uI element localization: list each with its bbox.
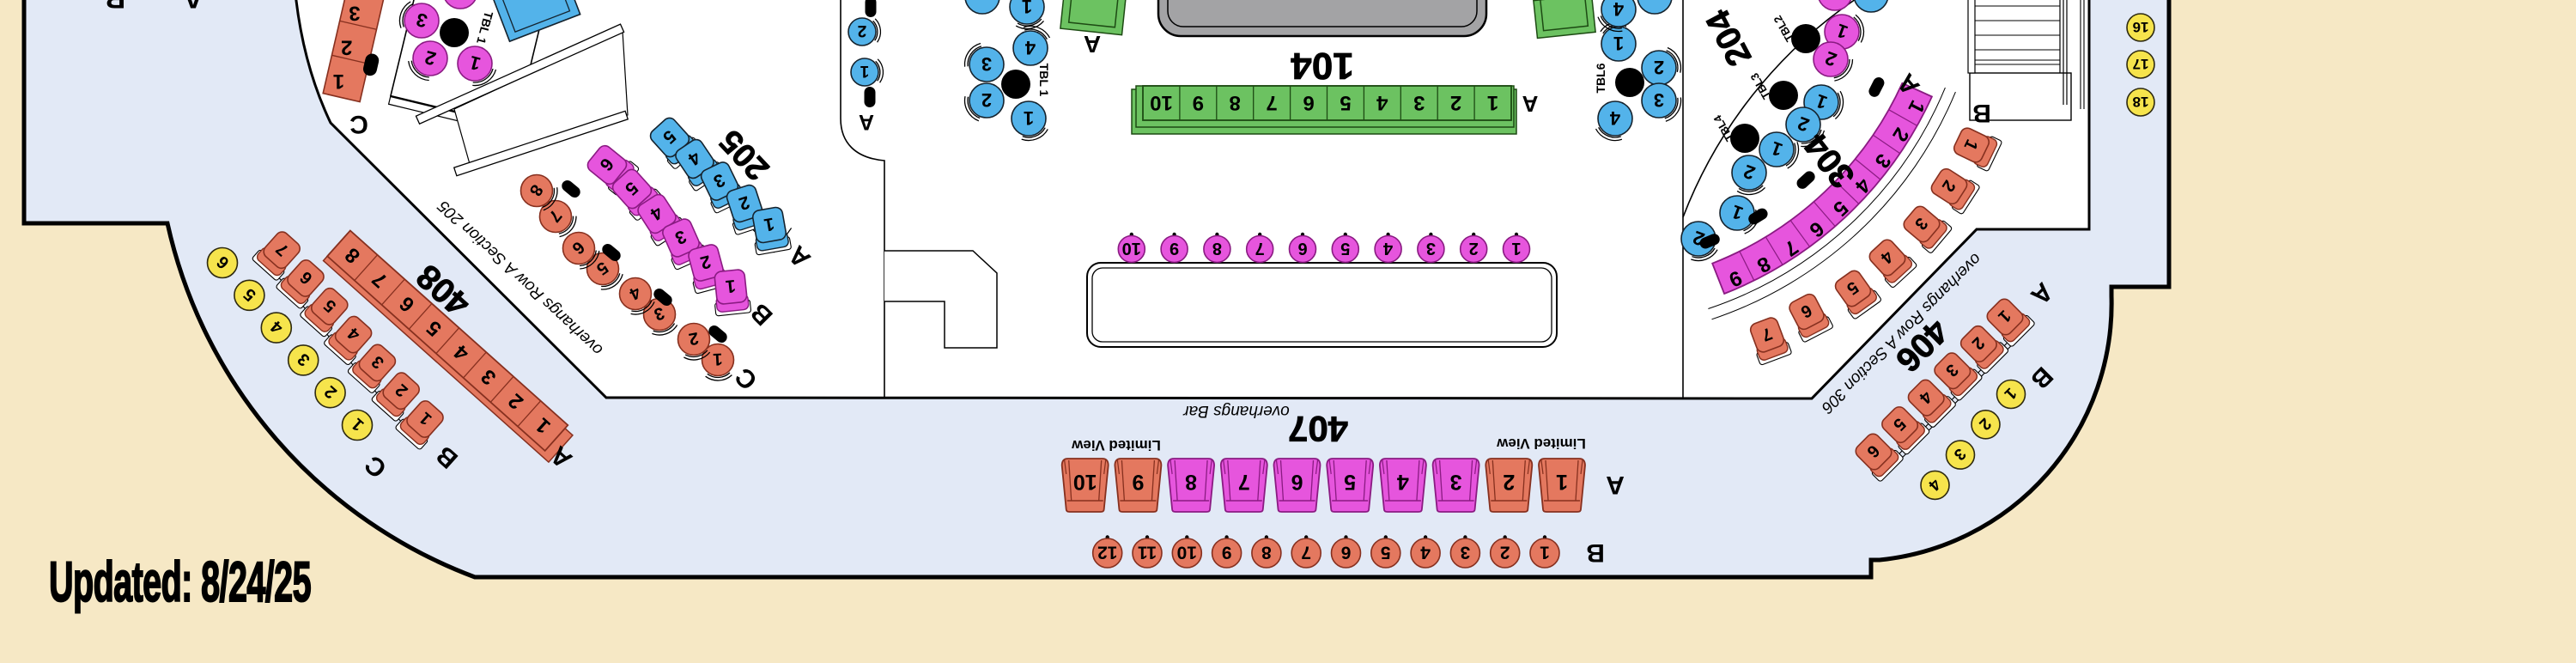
svg-text:4: 4 bbox=[1024, 37, 1036, 58]
svg-text:A: A bbox=[1606, 471, 1625, 499]
svg-text:TBL6: TBL6 bbox=[1594, 63, 1607, 93]
svg-text:5: 5 bbox=[1344, 470, 1356, 494]
svg-text:3: 3 bbox=[1461, 542, 1471, 562]
svg-text:2: 2 bbox=[1503, 470, 1515, 494]
svg-text:10: 10 bbox=[1150, 91, 1173, 114]
svg-text:B: B bbox=[1586, 538, 1605, 567]
svg-text:A: A bbox=[183, 0, 204, 14]
svg-text:1: 1 bbox=[860, 62, 869, 80]
svg-text:A: A bbox=[859, 110, 874, 134]
svg-text:1: 1 bbox=[333, 70, 344, 93]
svg-text:4: 4 bbox=[1397, 470, 1409, 494]
svg-text:3: 3 bbox=[1654, 89, 1664, 111]
svg-text:overhangs Bar: overhangs Bar bbox=[1183, 402, 1290, 420]
svg-text:7: 7 bbox=[1238, 470, 1250, 494]
svg-text:6: 6 bbox=[1291, 470, 1303, 494]
svg-text:2: 2 bbox=[981, 89, 992, 111]
svg-text:A: A bbox=[1084, 31, 1101, 58]
svg-text:1: 1 bbox=[1024, 107, 1034, 129]
svg-text:2: 2 bbox=[341, 35, 352, 58]
svg-text:7: 7 bbox=[1266, 91, 1277, 114]
svg-text:6: 6 bbox=[1303, 91, 1314, 114]
svg-text:8: 8 bbox=[1261, 542, 1272, 562]
svg-text:6: 6 bbox=[1297, 239, 1307, 258]
svg-text:6: 6 bbox=[1341, 542, 1352, 562]
svg-text:2: 2 bbox=[1450, 91, 1461, 114]
svg-text:A: A bbox=[1522, 91, 1538, 117]
svg-text:1: 1 bbox=[1022, 0, 1032, 17]
svg-text:10: 10 bbox=[1122, 239, 1141, 258]
svg-text:5: 5 bbox=[1340, 239, 1350, 258]
svg-text:1: 1 bbox=[1613, 33, 1624, 54]
svg-text:4: 4 bbox=[1613, 0, 1624, 20]
svg-text:2: 2 bbox=[1500, 542, 1510, 562]
svg-text:8: 8 bbox=[1212, 239, 1222, 258]
svg-text:3: 3 bbox=[981, 53, 992, 75]
svg-text:1: 1 bbox=[1540, 542, 1550, 562]
svg-text:8: 8 bbox=[1230, 91, 1241, 114]
svg-text:5: 5 bbox=[1340, 91, 1351, 114]
svg-text:Updated: 8/24/25: Updated: 8/24/25 bbox=[49, 550, 311, 614]
svg-text:2: 2 bbox=[1469, 239, 1479, 258]
svg-text:8: 8 bbox=[1185, 470, 1197, 494]
svg-text:407: 407 bbox=[1288, 409, 1348, 449]
svg-text:16: 16 bbox=[2133, 19, 2149, 35]
svg-text:9: 9 bbox=[1222, 542, 1232, 562]
svg-text:9: 9 bbox=[1193, 91, 1204, 114]
svg-text:104: 104 bbox=[1291, 45, 1354, 87]
svg-text:12: 12 bbox=[1097, 542, 1117, 562]
svg-text:9: 9 bbox=[1132, 470, 1144, 494]
svg-text:1: 1 bbox=[713, 350, 723, 369]
svg-text:3: 3 bbox=[1413, 91, 1425, 114]
svg-text:7: 7 bbox=[1301, 542, 1311, 562]
svg-text:3: 3 bbox=[1426, 239, 1436, 258]
svg-text:4: 4 bbox=[1376, 91, 1388, 114]
svg-text:7: 7 bbox=[1255, 239, 1265, 258]
svg-text:B: B bbox=[105, 0, 126, 14]
svg-text:Limited View: Limited View bbox=[1496, 435, 1585, 452]
svg-text:1: 1 bbox=[1487, 91, 1498, 114]
svg-text:B: B bbox=[1972, 99, 1991, 127]
svg-text:10: 10 bbox=[1073, 470, 1097, 494]
svg-text:Limited View: Limited View bbox=[1071, 437, 1160, 453]
svg-text:10: 10 bbox=[1177, 542, 1197, 562]
svg-text:3: 3 bbox=[1450, 470, 1462, 494]
svg-text:5: 5 bbox=[1381, 542, 1391, 562]
svg-text:18: 18 bbox=[2133, 94, 2149, 110]
svg-text:17: 17 bbox=[2133, 56, 2149, 72]
svg-text:3: 3 bbox=[349, 1, 360, 24]
svg-text:9: 9 bbox=[1170, 239, 1179, 258]
svg-text:4: 4 bbox=[1609, 107, 1620, 129]
svg-text:1: 1 bbox=[1556, 470, 1568, 494]
svg-text:4: 4 bbox=[1382, 239, 1393, 258]
svg-text:2: 2 bbox=[858, 21, 867, 40]
svg-text:11: 11 bbox=[1138, 542, 1157, 562]
svg-text:1: 1 bbox=[1511, 239, 1521, 258]
svg-text:2: 2 bbox=[1654, 57, 1664, 78]
svg-text:TBL 1: TBL 1 bbox=[1037, 64, 1051, 97]
svg-text:C: C bbox=[349, 110, 368, 138]
svg-text:4: 4 bbox=[1420, 542, 1431, 562]
